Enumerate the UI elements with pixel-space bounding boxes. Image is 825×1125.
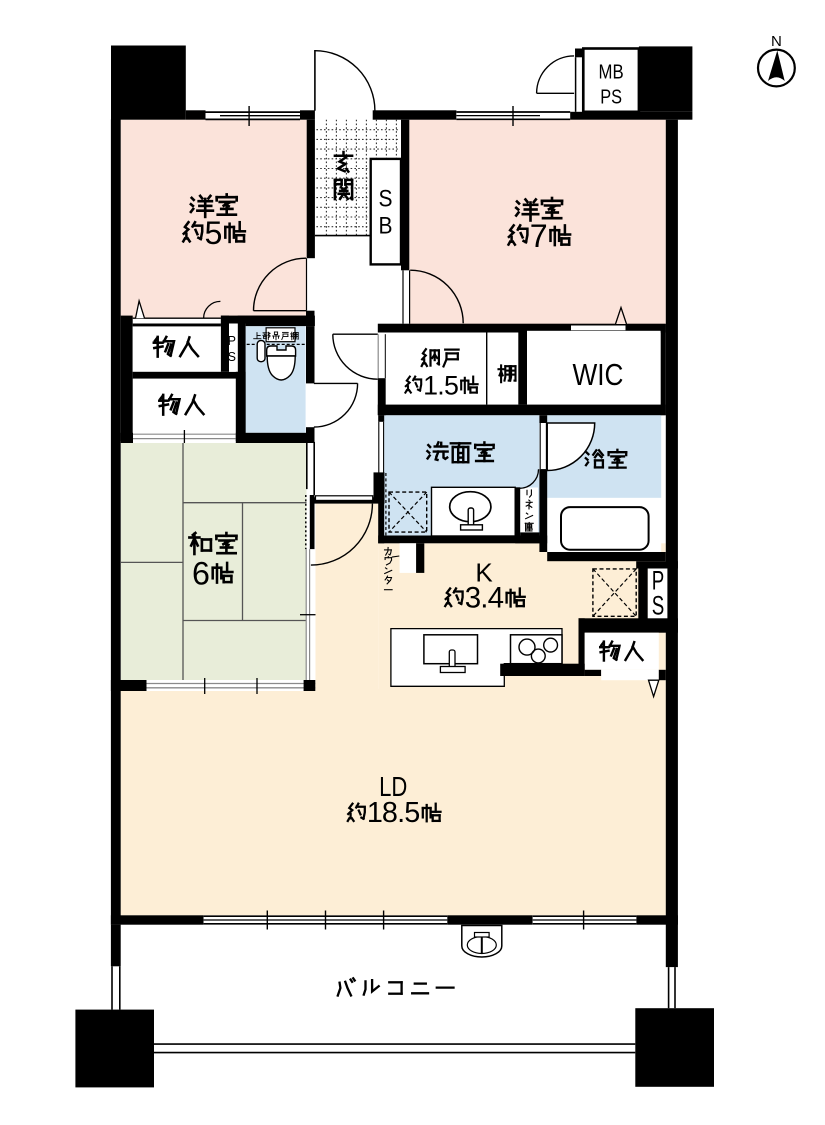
svg-text:7: 7 [530,218,548,254]
svg-text:P: P [228,334,236,348]
svg-text:5: 5 [404,797,420,829]
svg-text:MB: MB [599,61,624,84]
svg-text:5: 5 [205,215,223,251]
svg-text:S: S [652,591,665,621]
svg-text:6: 6 [192,556,210,592]
svg-text:WIC: WIC [573,357,624,392]
svg-text:N: N [771,33,782,50]
svg-text:S: S [228,350,236,364]
svg-text:3: 3 [465,582,481,615]
svg-text:S: S [379,186,393,213]
svg-text:B: B [379,213,393,240]
svg-text:1: 1 [367,797,383,829]
svg-text:8: 8 [382,797,398,829]
svg-text:PS: PS [600,86,622,109]
svg-text:1: 1 [423,370,438,400]
svg-text:4: 4 [488,582,504,615]
svg-text:5: 5 [444,370,459,400]
